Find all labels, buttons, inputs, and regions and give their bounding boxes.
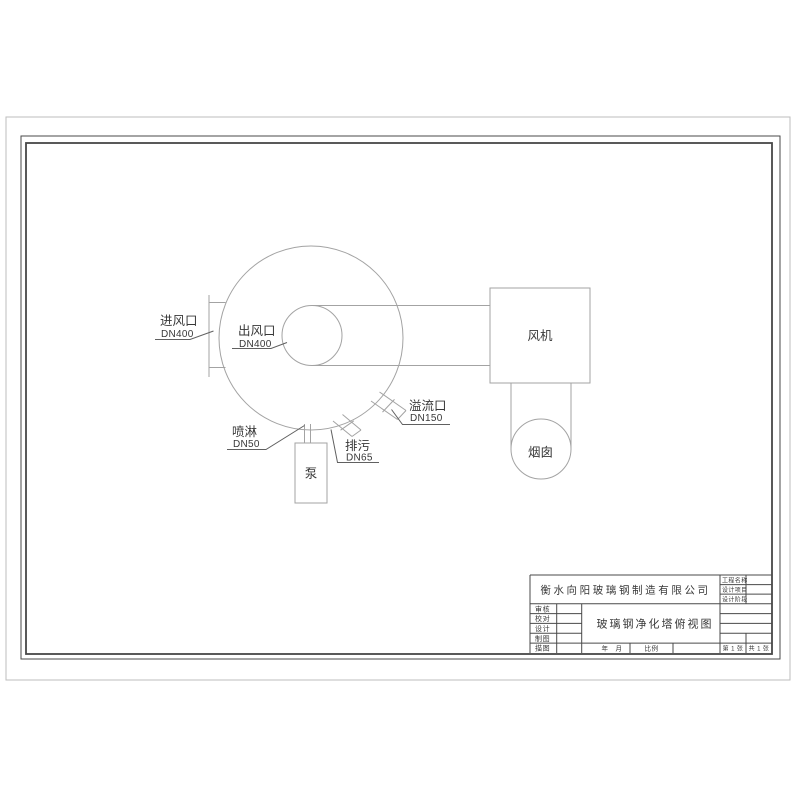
overflow-label: 溢流口 xyxy=(409,399,447,413)
drawing-title: 玻璃钢净化塔俯视图 xyxy=(597,617,714,631)
tb-role-check: 校对 xyxy=(535,614,550,623)
tb-date-label: 年 月 xyxy=(602,644,623,653)
cad-sheet: 进风口 DN400 出风口 DN400 喷淋 DN50 排污 DN65 溢流口 … xyxy=(0,0,800,800)
drain-size-label: DN65 xyxy=(346,453,373,464)
chimney-label: 烟囱 xyxy=(528,446,553,460)
spray-label: 喷淋 xyxy=(232,425,258,439)
overflow-size-label: DN150 xyxy=(410,413,443,424)
drain-label: 排污 xyxy=(345,439,370,453)
tb-sheet-no: 第 1 张 xyxy=(723,645,744,653)
pump-label: 泵 xyxy=(305,467,318,481)
tb-role-design: 设计 xyxy=(535,624,550,633)
tb-role-review: 审核 xyxy=(535,604,550,613)
outlet-label: 出风口 xyxy=(238,324,276,338)
tb-role-trace: 描图 xyxy=(535,644,550,653)
company-name: 衡水向阳玻璃钢制造有限公司 xyxy=(540,584,710,597)
tb-field-project-name: 工程名称 xyxy=(722,576,748,584)
tb-scale-label: 比例 xyxy=(645,644,659,653)
tb-role-draft: 制图 xyxy=(535,634,550,643)
tb-field-design-stage: 设计阶段 xyxy=(722,595,748,603)
drawing-canvas: 进风口 DN400 出风口 DN400 喷淋 DN50 排污 DN65 溢流口 … xyxy=(0,0,800,800)
spray-size-label: DN50 xyxy=(233,439,260,450)
inlet-label: 进风口 xyxy=(160,314,198,328)
tb-field-design-project: 设计项目 xyxy=(722,586,748,594)
inlet-size-label: DN400 xyxy=(161,329,194,340)
outlet-size-label: DN400 xyxy=(239,339,272,350)
fan-label: 风机 xyxy=(527,329,553,343)
tb-sheet-total: 共 1 张 xyxy=(749,645,770,653)
